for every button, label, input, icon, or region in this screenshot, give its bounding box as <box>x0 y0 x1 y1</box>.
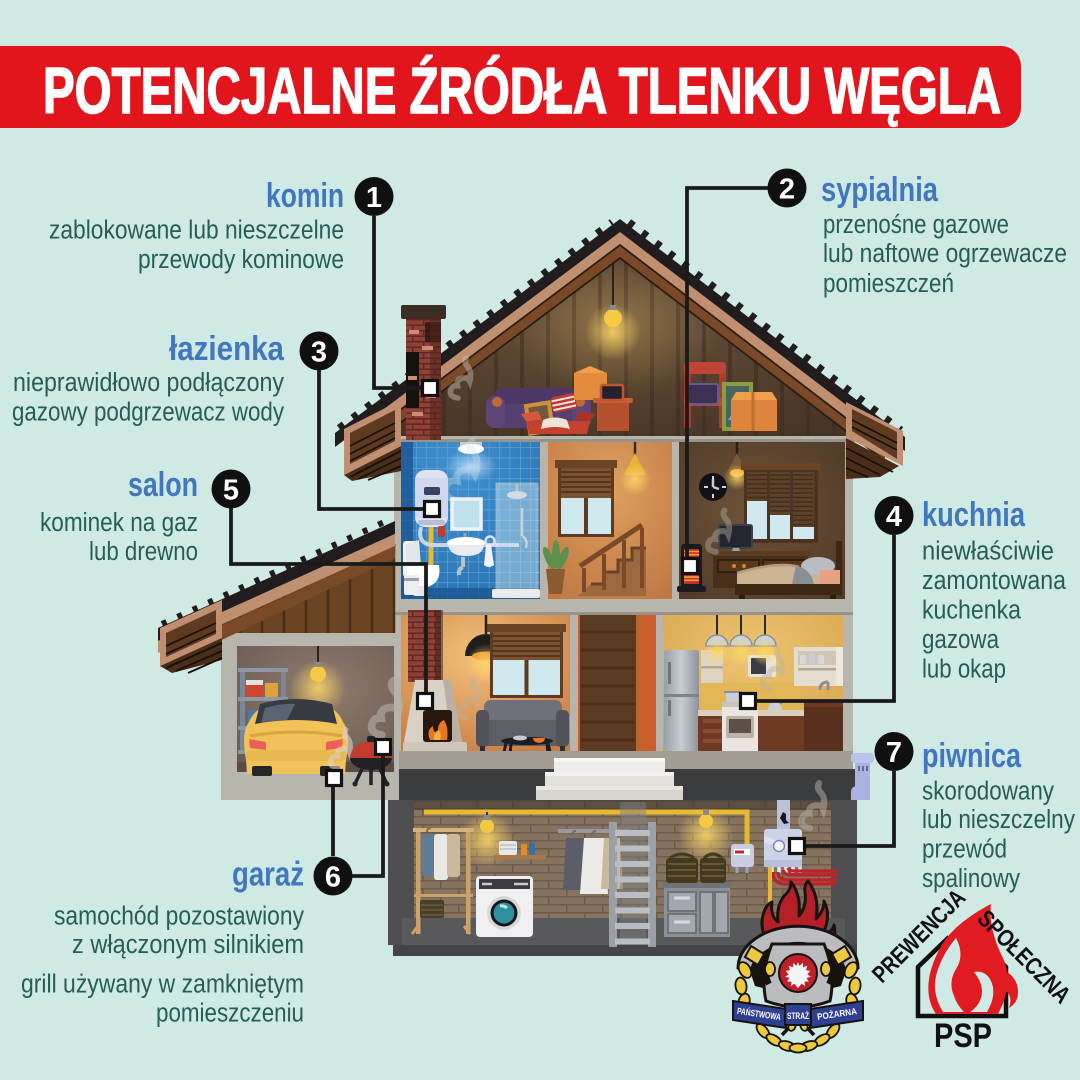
svg-text:przewód: przewód <box>922 836 1007 864</box>
svg-text:STRAŻ: STRAŻ <box>787 1011 809 1021</box>
svg-text:skorodowany: skorodowany <box>922 778 1054 806</box>
svg-text:z włączonym silnikiem: z włączonym silnikiem <box>72 931 304 959</box>
svg-text:garaż: garaż <box>232 856 304 894</box>
svg-text:niewłaściwie: niewłaściwie <box>922 538 1054 566</box>
svg-text:pomieszczeń: pomieszczeń <box>823 270 954 298</box>
svg-text:kuchenka: kuchenka <box>922 597 1022 625</box>
svg-text:kominek na gaz: kominek na gaz <box>40 509 198 537</box>
svg-text:komin: komin <box>266 177 344 215</box>
svg-text:pomieszczeniu: pomieszczeniu <box>156 1000 304 1028</box>
svg-text:zamontowana: zamontowana <box>922 567 1067 595</box>
svg-text:lub naftowe ogrzewacze: lub naftowe ogrzewacze <box>823 240 1067 268</box>
svg-text:3: 3 <box>311 337 327 369</box>
svg-text:salon: salon <box>128 466 198 504</box>
svg-text:nieprawidłowo podłączony: nieprawidłowo podłączony <box>13 369 284 397</box>
svg-text:5: 5 <box>223 475 239 507</box>
svg-text:zablokowane lub nieszczelne: zablokowane lub nieszczelne <box>49 217 344 245</box>
svg-text:lub nieszczelny: lub nieszczelny <box>922 806 1075 834</box>
svg-text:piwnica: piwnica <box>922 737 1022 775</box>
svg-text:POTENCJALNE ŹRÓDŁA TLENKU WĘGL: POTENCJALNE ŹRÓDŁA TLENKU WĘGLA <box>43 54 1001 127</box>
svg-text:4: 4 <box>886 501 902 533</box>
svg-text:1: 1 <box>366 182 382 214</box>
svg-text:przewody kominowe: przewody kominowe <box>138 246 344 274</box>
svg-text:6: 6 <box>325 862 341 894</box>
svg-text:kuchnia: kuchnia <box>922 496 1026 534</box>
svg-text:gazowa: gazowa <box>922 626 1000 654</box>
svg-text:grill używany w zamkniętym: grill używany w zamkniętym <box>21 971 304 999</box>
svg-text:2: 2 <box>779 174 795 206</box>
svg-text:PSP: PSP <box>934 1017 992 1055</box>
svg-text:lub drewno: lub drewno <box>89 538 198 566</box>
svg-text:spalinowy: spalinowy <box>922 865 1020 893</box>
svg-text:lub okap: lub okap <box>922 656 1006 684</box>
svg-text:samochód pozostawiony: samochód pozostawiony <box>54 903 304 931</box>
svg-text:przenośne gazowe: przenośne gazowe <box>823 211 1009 239</box>
svg-text:sypialnia: sypialnia <box>821 171 939 209</box>
svg-text:łazienka: łazienka <box>169 330 285 368</box>
svg-text:7: 7 <box>886 737 902 769</box>
svg-text:gazowy podgrzewacz wody: gazowy podgrzewacz wody <box>12 399 284 427</box>
